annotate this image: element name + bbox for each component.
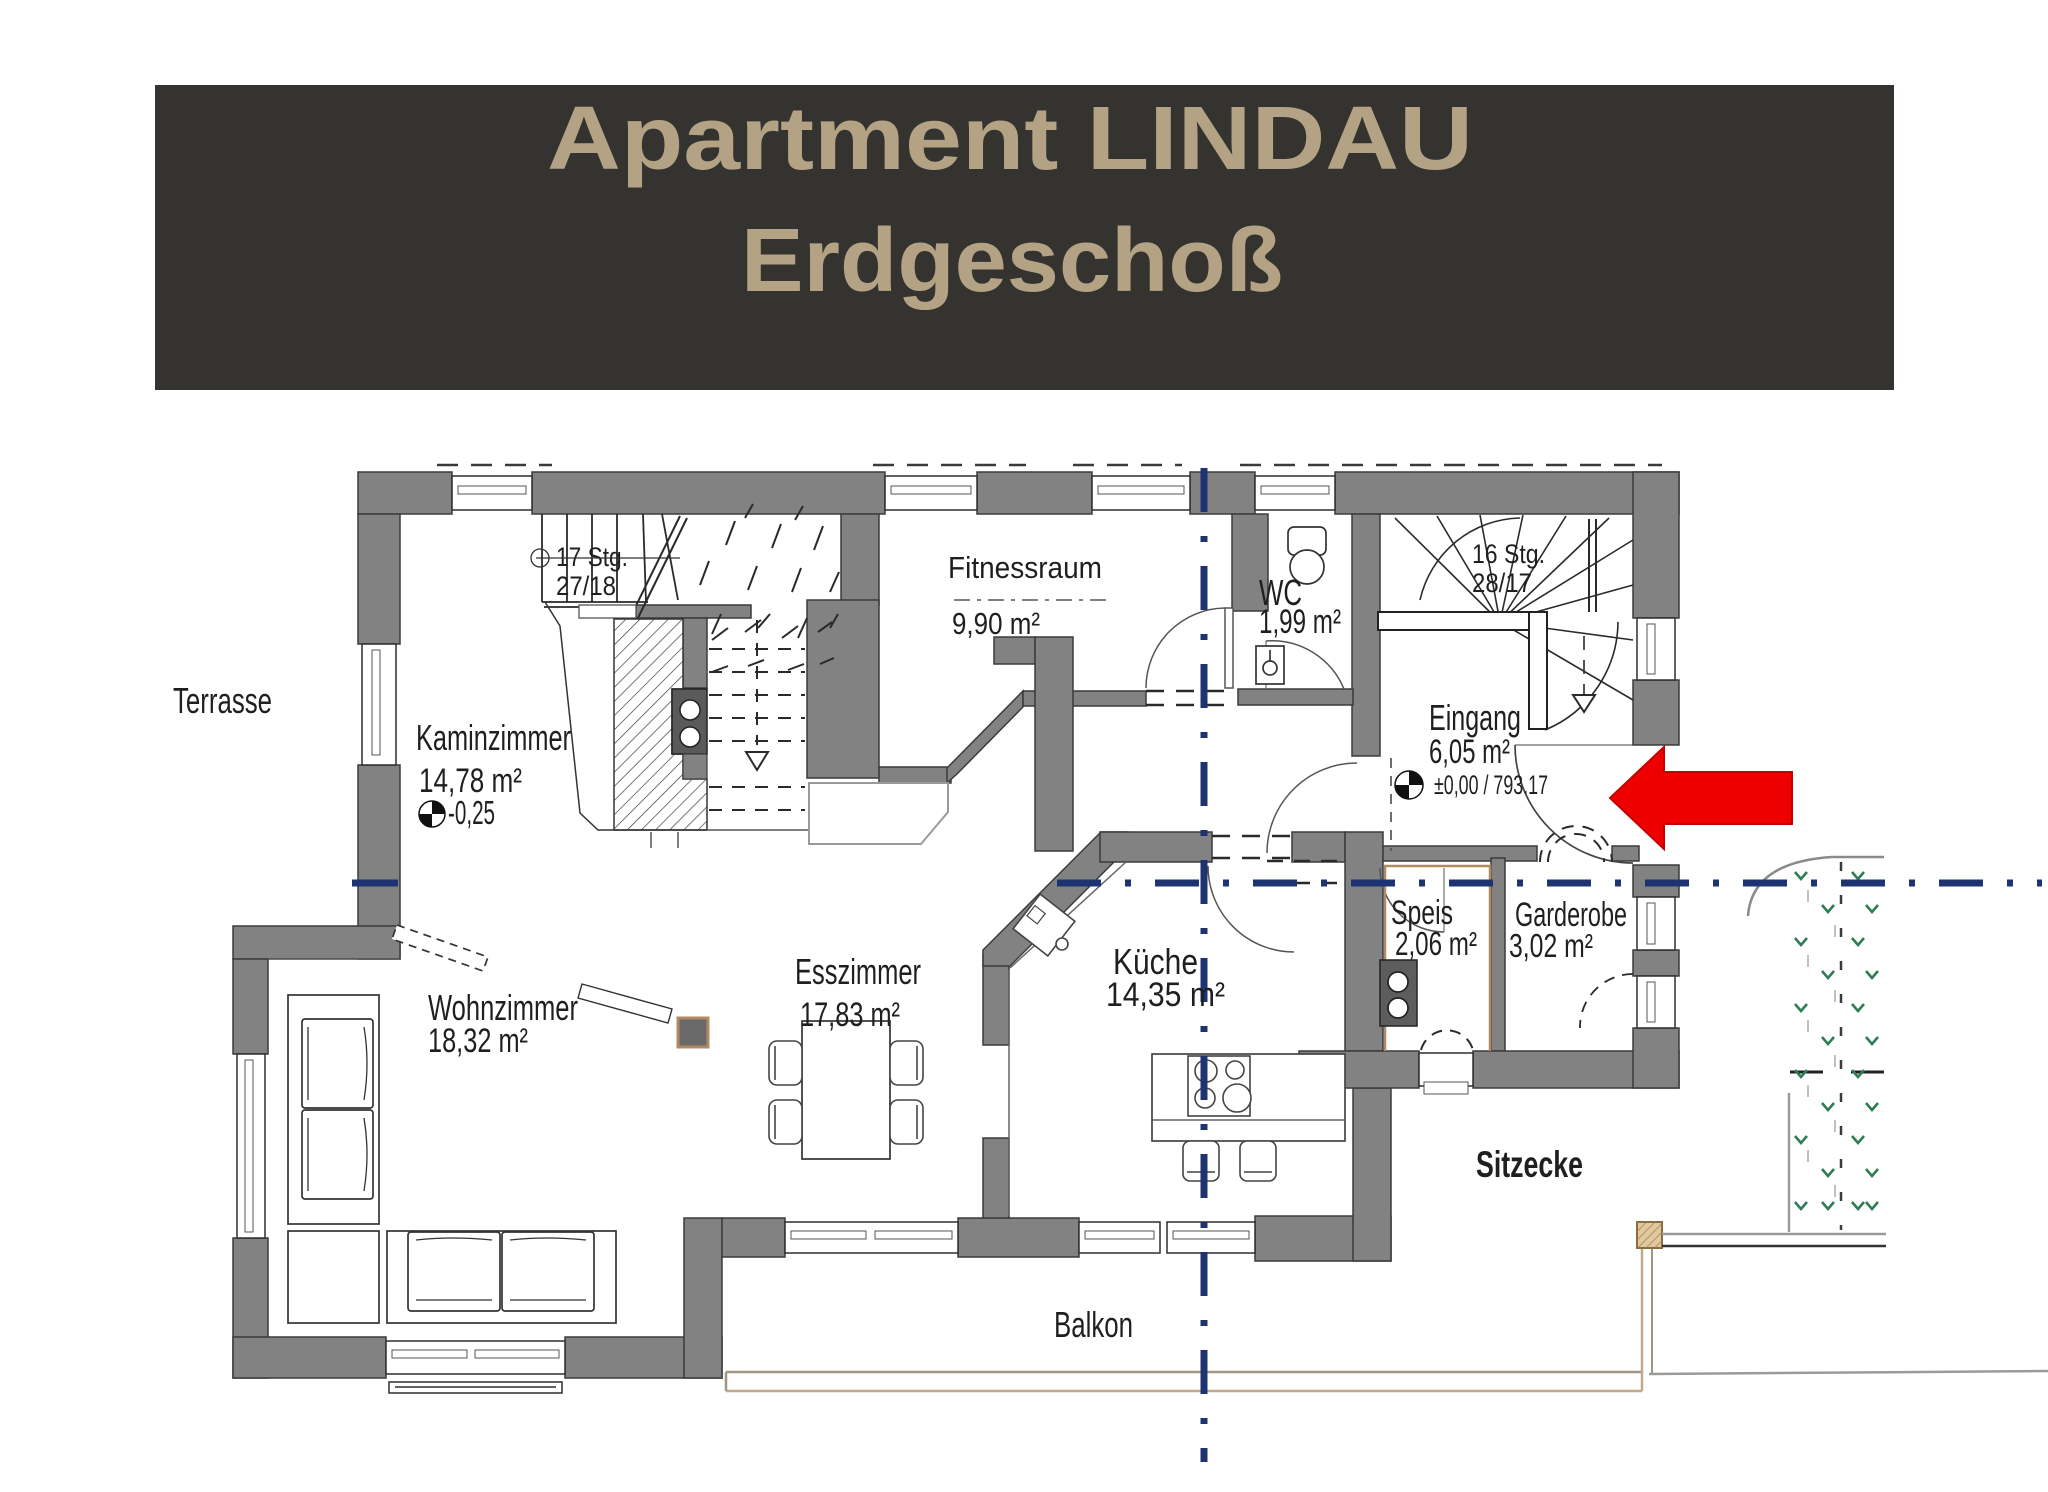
svg-text:6,05 m²: 6,05 m²: [1429, 733, 1510, 771]
svg-text:Kaminzimmer: Kaminzimmer: [416, 717, 571, 758]
svg-text:17,83 m²: 17,83 m²: [800, 996, 900, 1034]
svg-text:3,02 m²: 3,02 m²: [1509, 927, 1593, 964]
svg-text:1,99 m²: 1,99 m²: [1259, 603, 1341, 641]
svg-text:Terrasse: Terrasse: [173, 680, 272, 721]
svg-text:17 Stg.: 17 Stg.: [556, 542, 628, 572]
svg-text:Apartment LINDAU: Apartment LINDAU: [547, 89, 1473, 189]
svg-text:Fitnessraum: Fitnessraum: [948, 550, 1102, 585]
svg-text:±0,00 / 793.17: ±0,00 / 793.17: [1434, 770, 1548, 800]
svg-text:Erdgeschoß: Erdgeschoß: [741, 211, 1283, 311]
svg-text:-0,25: -0,25: [448, 794, 495, 831]
svg-text:Esszimmer: Esszimmer: [795, 951, 921, 992]
svg-text:16 Stg.: 16 Stg.: [1472, 539, 1545, 569]
svg-text:Eingang: Eingang: [1429, 697, 1521, 738]
svg-text:27/18: 27/18: [556, 571, 616, 601]
svg-text:28/17: 28/17: [1472, 568, 1532, 598]
svg-text:9,90 m²: 9,90 m²: [952, 606, 1040, 641]
svg-text:18,32 m²: 18,32 m²: [428, 1022, 528, 1060]
svg-text:Sitzecke: Sitzecke: [1476, 1144, 1583, 1185]
svg-text:2,06 m²: 2,06 m²: [1395, 925, 1477, 962]
svg-text:14,35 m²: 14,35 m²: [1106, 976, 1225, 1014]
svg-text:Balkon: Balkon: [1054, 1304, 1133, 1345]
